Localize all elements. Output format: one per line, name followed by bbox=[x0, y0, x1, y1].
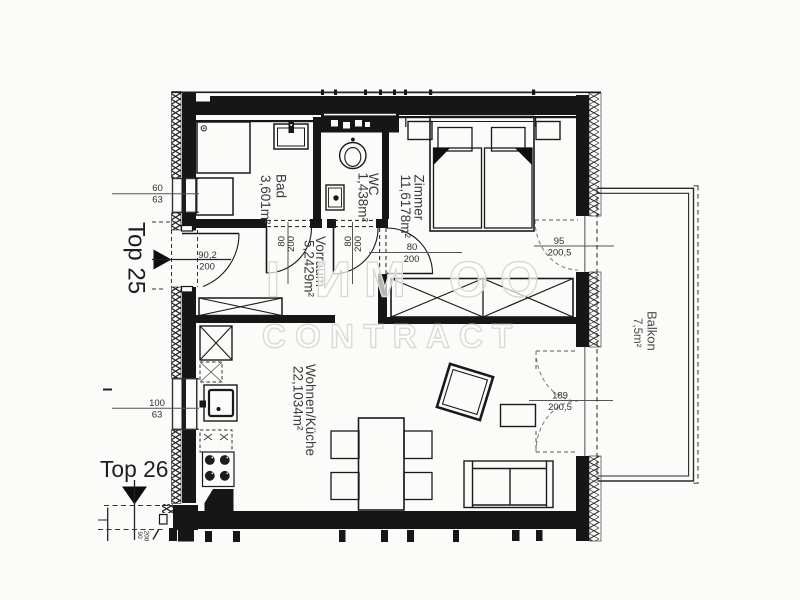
svg-text:90: 90 bbox=[136, 532, 143, 540]
svg-text:63: 63 bbox=[152, 410, 163, 421]
svg-text:200: 200 bbox=[286, 236, 297, 252]
svg-text:11,6178m²: 11,6178m² bbox=[398, 175, 413, 239]
svg-text:Bad: Bad bbox=[274, 174, 289, 198]
svg-text:Top 26: Top 26 bbox=[100, 456, 168, 482]
svg-text:189: 189 bbox=[552, 391, 568, 402]
svg-text:Top 25: Top 25 bbox=[123, 222, 150, 294]
svg-text:CONTRACT: CONTRACT bbox=[262, 318, 522, 355]
svg-text:Balkon: Balkon bbox=[645, 311, 660, 351]
svg-text:O: O bbox=[449, 252, 488, 308]
svg-text:60: 60 bbox=[152, 183, 163, 194]
svg-text:3,601m²: 3,601m² bbox=[258, 175, 273, 225]
svg-text:200: 200 bbox=[143, 531, 150, 542]
svg-text:200,5: 200,5 bbox=[548, 248, 572, 259]
svg-text:90,2: 90,2 bbox=[198, 250, 217, 261]
svg-text:200: 200 bbox=[404, 254, 420, 265]
svg-text:200: 200 bbox=[353, 236, 364, 252]
svg-text:22,1034m²: 22,1034m² bbox=[291, 366, 306, 431]
svg-text:200,5: 200,5 bbox=[548, 402, 572, 413]
svg-text:7,5m²: 7,5m² bbox=[631, 318, 643, 348]
svg-text:63: 63 bbox=[152, 195, 163, 206]
svg-text:O: O bbox=[500, 252, 539, 308]
svg-text:100: 100 bbox=[149, 398, 165, 409]
svg-text:И: И bbox=[315, 252, 351, 308]
svg-text:80: 80 bbox=[407, 242, 418, 253]
svg-text:95: 95 bbox=[554, 236, 565, 247]
svg-text:M: M bbox=[364, 252, 406, 308]
svg-text:I: I bbox=[266, 252, 280, 308]
svg-text:1,438m²: 1,438m² bbox=[356, 173, 371, 223]
svg-text:200: 200 bbox=[199, 262, 215, 273]
